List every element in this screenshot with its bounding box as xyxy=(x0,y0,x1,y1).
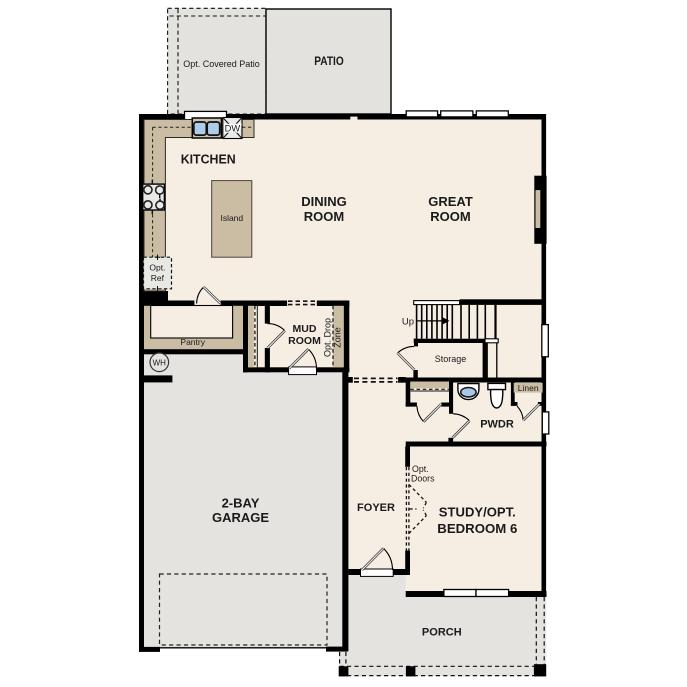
svg-text:PORCH: PORCH xyxy=(422,627,462,639)
svg-text:BEDROOM 6: BEDROOM 6 xyxy=(437,521,517,536)
svg-text:DINING: DINING xyxy=(301,194,347,209)
svg-text:FOYER: FOYER xyxy=(357,502,395,514)
svg-text:ROOM: ROOM xyxy=(288,335,321,347)
svg-text:Up: Up xyxy=(402,317,414,328)
svg-text:Opt. Drop: Opt. Drop xyxy=(323,318,333,357)
svg-text:Zone: Zone xyxy=(332,327,342,348)
svg-text:WH: WH xyxy=(153,358,167,367)
svg-text:GREAT: GREAT xyxy=(428,194,473,209)
svg-text:2-BAY: 2-BAY xyxy=(222,496,260,511)
svg-text:ROOM: ROOM xyxy=(430,209,470,224)
svg-text:Pantry: Pantry xyxy=(180,337,205,347)
svg-text:DW: DW xyxy=(225,123,241,133)
svg-text:Opt. Covered Patio: Opt. Covered Patio xyxy=(183,59,260,69)
svg-text:Opt.: Opt. xyxy=(149,263,165,273)
svg-text:Island: Island xyxy=(220,213,243,223)
svg-text:Opt.: Opt. xyxy=(412,464,429,474)
svg-text:Storage: Storage xyxy=(435,354,467,364)
svg-text:PWDR: PWDR xyxy=(480,419,514,431)
svg-text:Linen: Linen xyxy=(518,383,539,393)
svg-text:GARAGE: GARAGE xyxy=(212,510,269,525)
svg-text:ROOM: ROOM xyxy=(304,209,344,224)
svg-text:MUD: MUD xyxy=(293,323,317,335)
svg-text:PATIO: PATIO xyxy=(314,54,344,68)
svg-text:STUDY/OPT.: STUDY/OPT. xyxy=(439,505,516,520)
svg-text:Ref: Ref xyxy=(151,273,165,283)
svg-text:Doors: Doors xyxy=(411,474,435,484)
svg-text:KITCHEN: KITCHEN xyxy=(181,153,236,167)
